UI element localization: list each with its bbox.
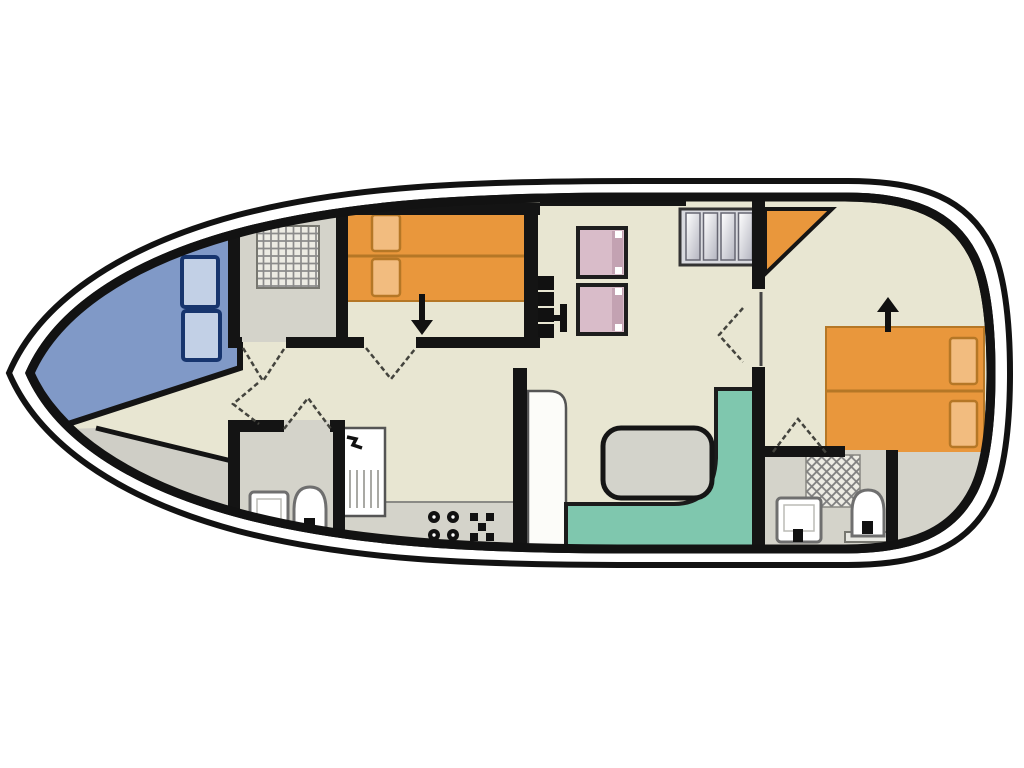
pillow [950,401,977,447]
pillow [372,215,400,251]
boat-floor-plan-page [0,0,1024,768]
dinette-table [603,428,712,498]
stair-tread [686,213,700,260]
helm-seat [578,285,626,334]
bow-seat [183,311,220,360]
shower-grate [257,226,319,288]
boat-floor-plan [0,0,1024,768]
pillow [372,259,400,296]
stair-tread [739,213,753,260]
pillow [950,338,977,384]
stair-tread [704,213,718,260]
stair-tread [721,213,735,260]
tall-cabinet [528,391,566,549]
helm-seat [578,228,626,277]
bow-seat [182,257,218,307]
galley-sink [343,428,385,516]
bathroom-sink [777,498,821,542]
